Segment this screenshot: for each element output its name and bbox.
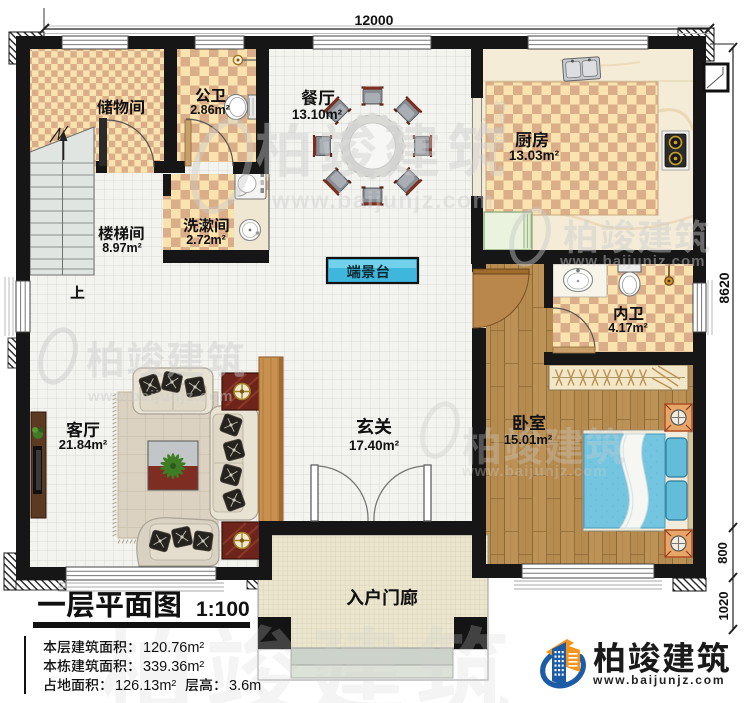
svg-text:8620: 8620 <box>716 272 732 303</box>
svg-text:www.baijunjz.com: www.baijunjz.com <box>271 187 495 213</box>
svg-text:www.baijunjz.com: www.baijunjz.com <box>87 388 233 405</box>
svg-text:120.76m²: 120.76m² <box>143 640 204 656</box>
svg-text:8.97m²: 8.97m² <box>102 241 142 255</box>
svg-text:4.17m²: 4.17m² <box>608 321 648 335</box>
svg-text:339.36m²: 339.36m² <box>143 659 204 675</box>
svg-text:2.72m²: 2.72m² <box>186 233 226 247</box>
svg-text:1:100: 1:100 <box>196 598 250 621</box>
svg-text:126.13m²: 126.13m² <box>115 678 176 694</box>
svg-text:13.03m²: 13.03m² <box>509 148 560 163</box>
svg-text:13.10m²: 13.10m² <box>292 107 343 122</box>
svg-text:12000: 12000 <box>355 12 394 28</box>
svg-text:1020: 1020 <box>716 592 731 621</box>
svg-text:21.84m²: 21.84m² <box>59 437 108 452</box>
svg-text:3.6m: 3.6m <box>229 678 261 694</box>
svg-text:17.40m²: 17.40m² <box>349 438 400 453</box>
svg-text:www.baijunjz.com: www.baijunjz.com <box>461 463 607 480</box>
svg-text:800: 800 <box>715 542 730 564</box>
svg-text:15.01m²: 15.01m² <box>504 432 553 447</box>
svg-text:2.86m²: 2.86m² <box>190 103 230 117</box>
svg-text:www.baijunjz.com: www.baijunjz.com <box>592 673 725 687</box>
svg-text:www.baijunjz.com: www.baijunjz.com <box>559 253 705 270</box>
